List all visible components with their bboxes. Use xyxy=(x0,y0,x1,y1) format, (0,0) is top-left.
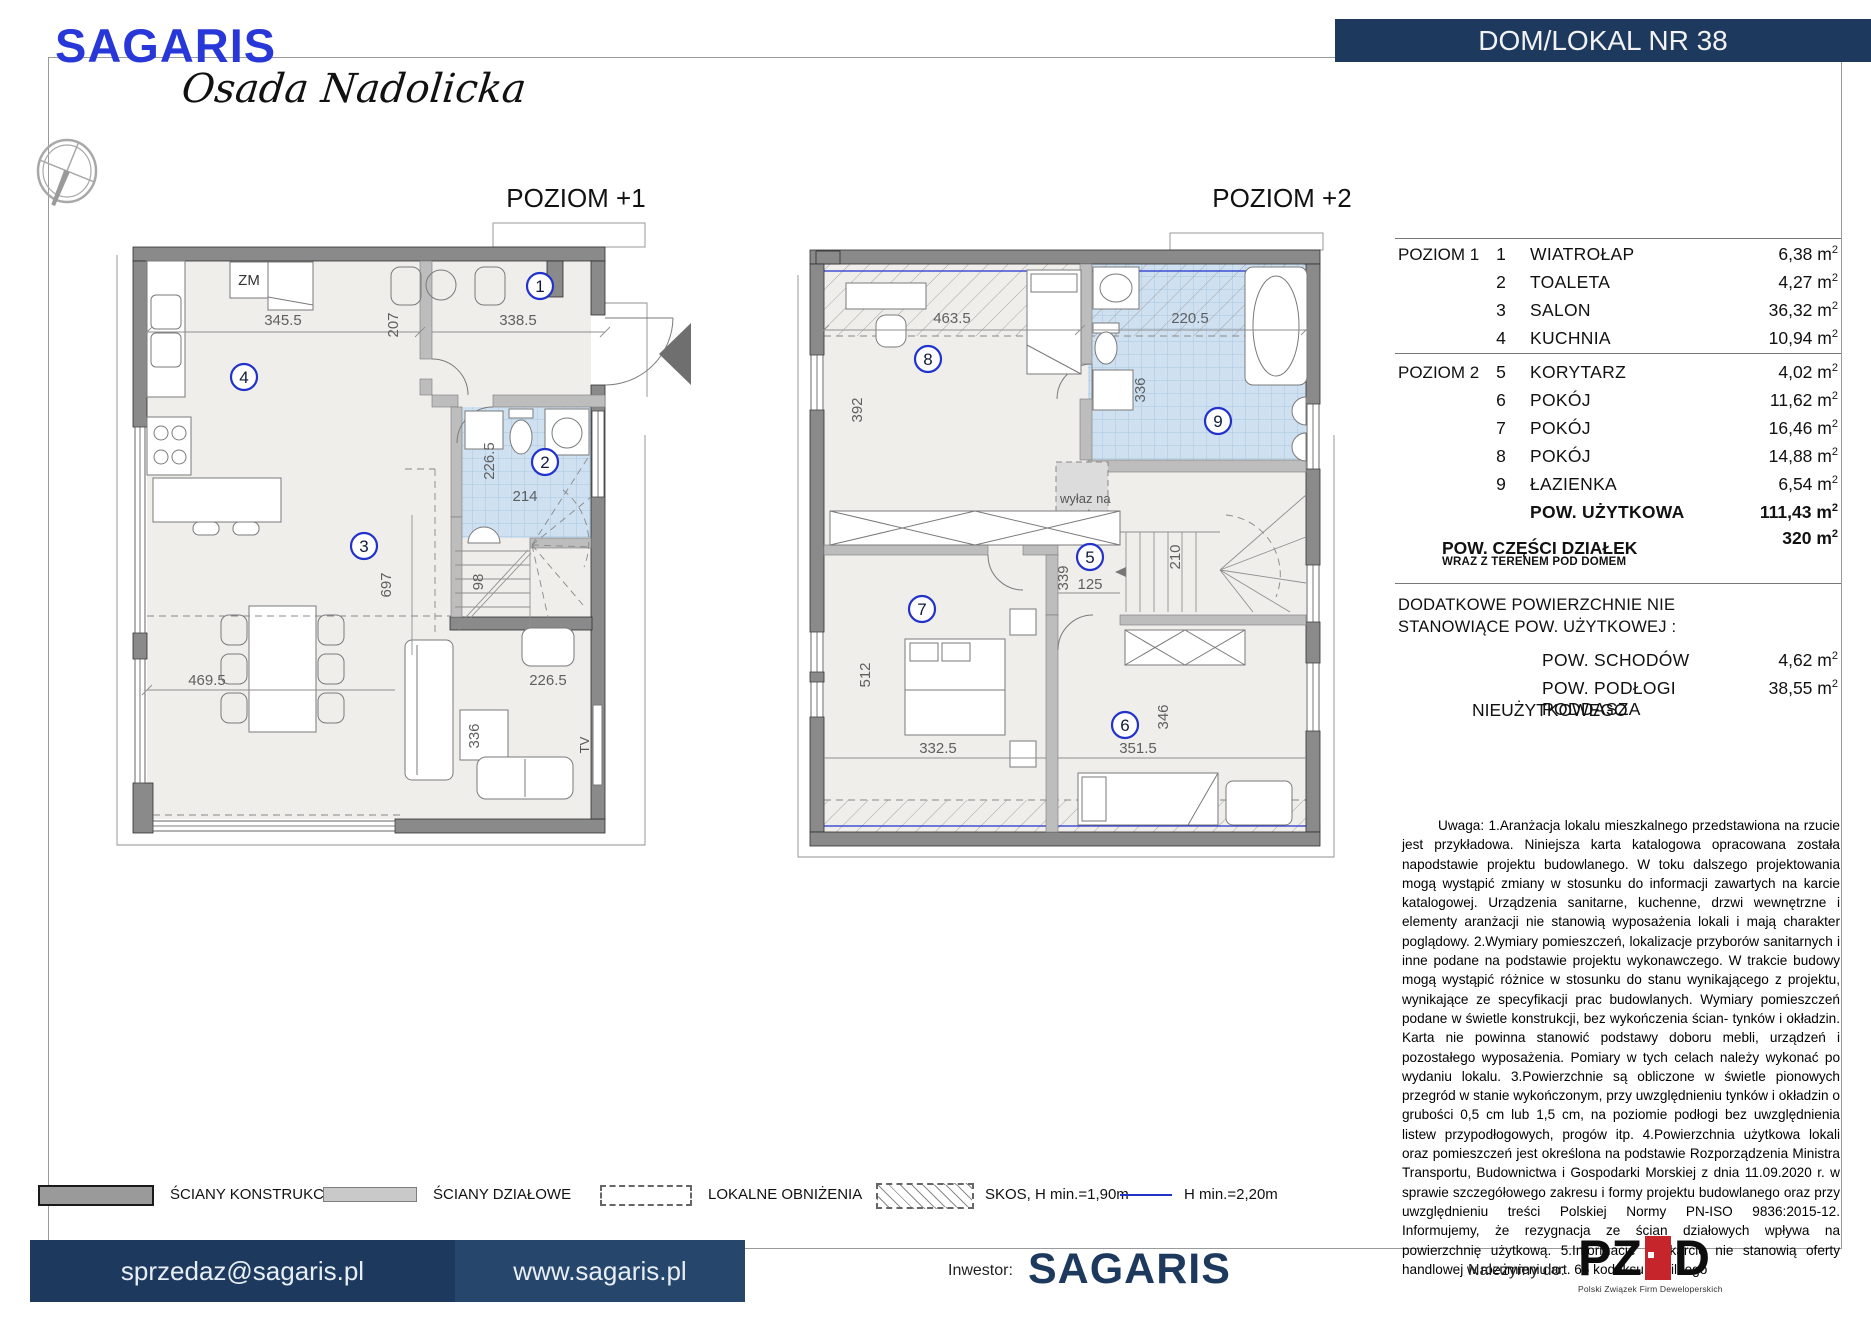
svg-text:5: 5 xyxy=(1085,548,1094,567)
legend-structural-walls-swatch xyxy=(38,1185,154,1206)
extra-areas-heading-1: DODATKOWE POWIERZCHNIE NIE xyxy=(1398,596,1675,615)
unit-banner-title: DOM/LOKAL NR 38 xyxy=(1478,25,1727,57)
dim-room6-width: 351.5 xyxy=(1119,740,1157,757)
footer-email-link[interactable]: sprzedaz@sagaris.pl xyxy=(121,1256,364,1287)
legend-slope-label: SKOS, H min.=1,90m xyxy=(985,1186,1129,1203)
plan1-room-2: 2 xyxy=(532,449,558,475)
plan2-room-6: 6 xyxy=(1112,712,1138,738)
floorplan-level2: wyłaz na strych xyxy=(790,185,1350,910)
zm-label: ZM xyxy=(238,272,260,289)
svg-text:4: 4 xyxy=(239,368,248,387)
table-row: 9 ŁAZIENKA 6,54 m2 xyxy=(1398,474,1838,495)
svg-text:3: 3 xyxy=(359,537,368,556)
membership-label: Należymy do: xyxy=(1468,1262,1565,1280)
total-usable-area-row: POW. UŻYTKOWA 111,43 m2 xyxy=(1398,502,1838,523)
dim-bath-height: 336 xyxy=(1132,377,1149,402)
floorplan-level1: ZM xyxy=(95,185,695,910)
table-row: 4 KUCHNIA 10,94 m2 xyxy=(1398,328,1838,349)
plot-area-sublabel: WRAZ Z TERENEM POD DOMEM xyxy=(1442,556,1626,568)
dim-room7-height: 512 xyxy=(857,662,874,687)
footer-website-link[interactable]: www.sagaris.pl xyxy=(513,1256,686,1287)
pzfd-d: D xyxy=(1674,1234,1710,1282)
dim-bath-width: 220.5 xyxy=(1171,310,1209,327)
dim-stairs-width: 98 xyxy=(470,574,487,591)
footer-email-box: sprzedaz@sagaris.pl xyxy=(30,1240,455,1302)
plan1-room-4: 4 xyxy=(231,364,257,390)
dim-entry-width: 338.5 xyxy=(499,312,537,329)
plan1-entry-door xyxy=(605,318,691,385)
svg-text:9: 9 xyxy=(1213,412,1222,431)
table-row: 6 POKÓJ 11,62 m2 xyxy=(1398,390,1838,411)
svg-text:1: 1 xyxy=(535,277,544,296)
table-rule-mid xyxy=(1395,353,1841,354)
dim-salon-width: 469.5 xyxy=(188,672,226,689)
section-label: POZIOM 1 xyxy=(1398,245,1486,265)
table-row: POZIOM 2 5 KORYTARZ 4,02 m2 xyxy=(1398,362,1838,383)
dim-armchair: 226.5 xyxy=(529,672,567,689)
plan1-room-1: 1 xyxy=(527,273,553,299)
svg-text:8: 8 xyxy=(923,350,932,369)
dim-room6-height: 346 xyxy=(1155,704,1172,729)
svg-text:7: 7 xyxy=(917,600,926,619)
svg-text:2: 2 xyxy=(540,453,549,472)
catalog-card-page: SAGARIS Osada Nadolicka DOM/LOKAL NR 38 … xyxy=(0,0,1871,1322)
legend-slope-swatch xyxy=(876,1183,974,1209)
pzfd-logo: PZ D Polski Związek Firm Deweloperskich xyxy=(1578,1234,1748,1294)
pzfd-door-icon xyxy=(1645,1236,1671,1280)
dim-wc-width: 214 xyxy=(512,488,537,505)
investor-name: SAGARIS xyxy=(1028,1245,1231,1294)
legend-lowered-ceiling-label: LOKALNE OBNIŻENIA xyxy=(708,1186,862,1203)
table-rule-top xyxy=(1395,238,1841,239)
plan2-room-7: 7 xyxy=(909,596,935,622)
investor-label: Inwestor: xyxy=(948,1262,1013,1280)
tv-label: TV xyxy=(577,736,592,753)
table-row: 2 TOALETA 4,27 m2 xyxy=(1398,272,1838,293)
dim-room8-height: 392 xyxy=(849,397,866,422)
dim-room8-width: 463.5 xyxy=(933,310,971,327)
footer-website-box: www.sagaris.pl xyxy=(455,1240,745,1302)
legend-height-line-swatch xyxy=(1120,1194,1172,1196)
pzfd-pz: PZ xyxy=(1578,1234,1642,1282)
legend-lowered-ceiling-swatch xyxy=(600,1185,692,1206)
entry-arrow-icon xyxy=(659,323,691,385)
section-label: POZIOM 2 xyxy=(1398,363,1486,383)
stairs-area-row: POW. SCHODÓW 4,62 m2 xyxy=(1398,650,1838,671)
attic-area-label-2: NIEUŻYTKOWEGO xyxy=(1472,700,1628,721)
plan1-room-3: 3 xyxy=(351,533,377,559)
dim-gap: 207 xyxy=(385,312,402,337)
legend-height-line-label: H min.=2,20m xyxy=(1184,1186,1278,1203)
dim-corridor-height: 339 xyxy=(1055,565,1072,590)
svg-text:6: 6 xyxy=(1120,716,1129,735)
legend-partition-walls-label: ŚCIANY DZIAŁOWE xyxy=(433,1186,571,1203)
dim-wc-height: 226.5 xyxy=(481,442,498,480)
table-row: 3 SALON 36,32 m2 xyxy=(1398,300,1838,321)
dim-salon-height: 697 xyxy=(378,572,395,597)
table-row: POZIOM 1 1 WIATROŁAP 6,38 m2 xyxy=(1398,244,1838,265)
dim-room7-width: 332.5 xyxy=(919,740,957,757)
compass-icon xyxy=(35,138,101,215)
table-rule-bottom xyxy=(1395,583,1841,584)
plan2-room-9: 9 xyxy=(1205,408,1231,434)
unit-banner: DOM/LOKAL NR 38 xyxy=(1335,19,1871,62)
plan2-room-8: 8 xyxy=(915,346,941,372)
legend-partition-walls-swatch xyxy=(323,1187,417,1202)
sagaris-logo: SAGARIS xyxy=(55,18,276,73)
legal-notes: Uwaga: 1.Aranżacja lokalu mieszkalnego p… xyxy=(1402,816,1840,1279)
table-row: 7 POKÓJ 16,46 m2 xyxy=(1398,418,1838,439)
pzfd-caption: Polski Związek Firm Deweloperskich xyxy=(1578,1284,1748,1294)
dim-corridor-width: 125 xyxy=(1077,576,1102,593)
dim-stairs: 210 xyxy=(1167,544,1184,569)
dim-table: 336 xyxy=(466,723,483,748)
estate-name: Osada Nadolicka xyxy=(180,66,529,112)
dim-kitchen-width: 345.5 xyxy=(264,312,302,329)
attic-label-1: wyłaz na xyxy=(1059,491,1111,506)
table-row: 8 POKÓJ 14,88 m2 xyxy=(1398,446,1838,467)
extra-areas-heading-2: STANOWIĄCE POW. UŻYTKOWEJ : xyxy=(1398,618,1676,637)
plan2-room-5: 5 xyxy=(1077,544,1103,570)
